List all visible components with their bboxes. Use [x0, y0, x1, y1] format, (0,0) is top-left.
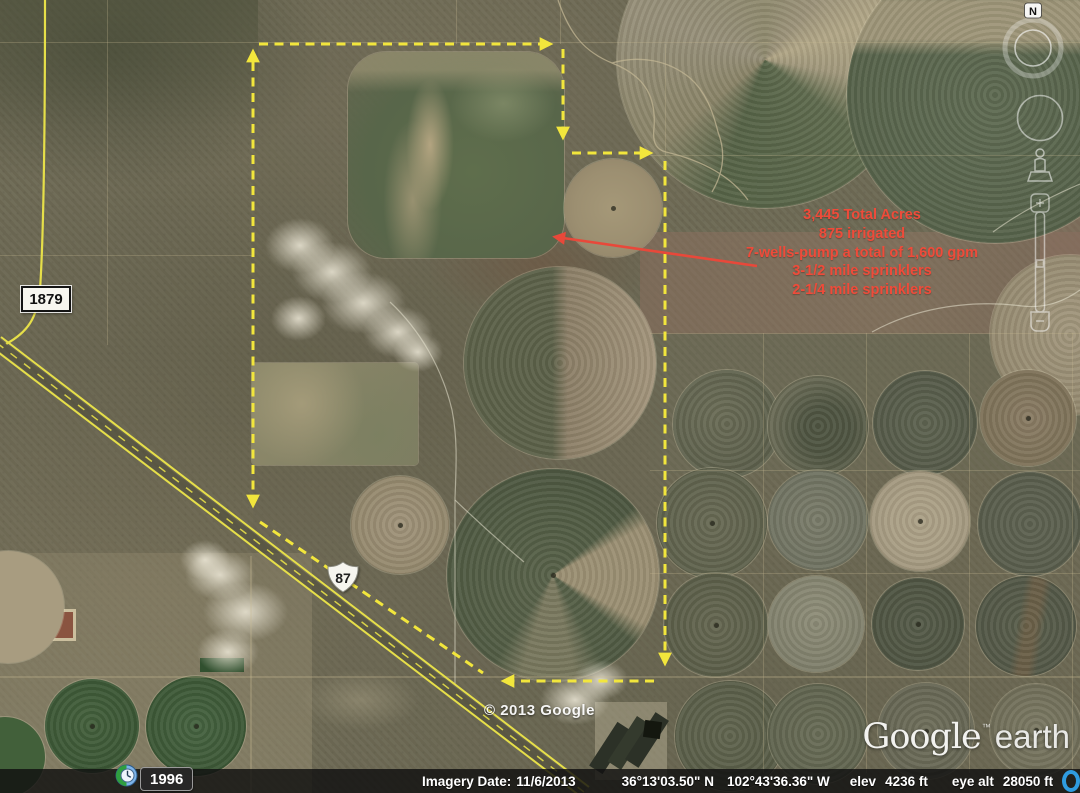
- zoom-slider[interactable]: [1031, 194, 1049, 331]
- annotation-arrow: [556, 237, 757, 266]
- eye-altitude-label: eye alt: [952, 774, 994, 789]
- copyright-watermark: © 2013 Google: [484, 702, 595, 719]
- zoom-handle[interactable]: [1037, 260, 1044, 267]
- latitude-readout: 36°13'03.50" N: [622, 774, 714, 789]
- annotation-line: 3-1/2 mile sprinklers: [738, 262, 986, 281]
- compass-ring[interactable]: [1005, 20, 1061, 76]
- streaming-indicator-icon: [1062, 770, 1080, 792]
- us-87-highway: [0, 337, 589, 793]
- acreage-annotation: 3,445 Total Acres 875 irrigated 7-wells-…: [738, 206, 986, 300]
- annotation-line: 875 irrigated: [738, 225, 986, 244]
- imagery-date-label: Imagery Date:: [422, 774, 511, 789]
- creek-lines: [558, 0, 748, 200]
- google-earth-logo: Google™earth: [862, 717, 1070, 757]
- compass-north-label: N: [1029, 6, 1037, 18]
- logo-tm-mark: ™: [982, 722, 991, 732]
- annotation-line: 3,445 Total Acres: [738, 206, 986, 225]
- look-joystick[interactable]: [1015, 30, 1051, 66]
- imagery-date-value: 11/6/2013: [516, 774, 575, 789]
- logo-google-text: Google: [862, 717, 980, 757]
- nav-controls: [1005, 3, 1063, 331]
- us-highway-number: 87: [335, 570, 351, 586]
- elevation-label: elev: [850, 774, 876, 789]
- move-joystick[interactable]: [1018, 96, 1063, 141]
- google-earth-window: N 1879 87 3,445 Total Acres 875 irrigate…: [0, 0, 1080, 793]
- logo-earth-text: earth: [995, 718, 1070, 755]
- historical-imagery-icon[interactable]: [115, 764, 138, 792]
- fm-road-sign: 1879: [21, 286, 71, 312]
- elevation-value: 4236 ft: [885, 774, 928, 789]
- timeline-year-badge[interactable]: 1996: [140, 767, 193, 791]
- longitude-readout: 102°43'36.36" W: [727, 774, 830, 789]
- us-highway-shield: 87: [325, 560, 361, 594]
- map-overlay-graphics: N: [0, 0, 1080, 793]
- pegman-icon[interactable]: [1028, 149, 1052, 181]
- eye-altitude-value: 28050 ft: [1003, 774, 1053, 789]
- annotation-line: 7-wells-pump a total of 1,600 gpm: [738, 244, 986, 263]
- annotation-line: 2-1/4 mile sprinklers: [738, 281, 986, 300]
